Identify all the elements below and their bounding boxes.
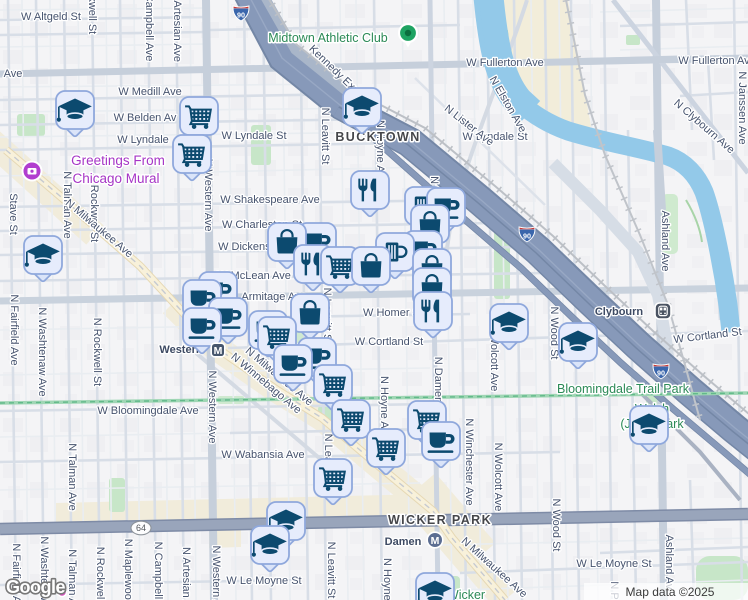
svg-text:W Fullerton Av: W Fullerton Av — [678, 55, 748, 67]
svg-text:N Artesian Ave: N Artesian Ave — [171, 0, 183, 62]
svg-text:Ashland Ave: Ashland Ave — [659, 211, 671, 272]
svg-text:W Bloomingdale Ave: W Bloomingdale Ave — [97, 405, 198, 417]
svg-text:Bloomingdale Trail Park: Bloomingdale Trail Park — [557, 382, 690, 396]
svg-text:Map data ©2025: Map data ©2025 — [626, 585, 715, 599]
svg-text:N Leavitt St: N Leavitt St — [319, 108, 331, 165]
svg-text:WICKER PARK: WICKER PARK — [388, 513, 492, 527]
svg-text:Chicago Mural: Chicago Mural — [72, 171, 159, 186]
svg-text:M: M — [214, 345, 223, 357]
svg-text:N Winchester Ave: N Winchester Ave — [463, 418, 475, 505]
svg-text:N Leavitt St: N Leavitt St — [325, 542, 337, 599]
svg-text:W Shakespeare Ave: W Shakespeare Ave — [220, 194, 319, 206]
svg-text:N Hoyne Ave: N Hoyne Ave — [381, 558, 393, 600]
svg-text:W Lyndale: W Lyndale — [117, 134, 169, 146]
svg-text:W Wabansia Ave: W Wabansia Ave — [221, 449, 304, 461]
svg-text:N Rockwell St: N Rockwell St — [86, 0, 98, 34]
svg-text:N Wood St: N Wood St — [550, 499, 562, 552]
svg-text:64: 64 — [136, 523, 146, 533]
svg-text:Damen: Damen — [385, 536, 422, 548]
svg-text:N Damen: N Damen — [432, 357, 444, 403]
svg-text:BUCKTOWN: BUCKTOWN — [335, 130, 420, 144]
svg-text:W Altgeld St: W Altgeld St — [21, 11, 81, 23]
svg-text:N Campbell Ave: N Campbell Ave — [152, 542, 164, 600]
svg-text:N Rockwell St: N Rockwell St — [94, 547, 106, 600]
svg-text:Greetings From: Greetings From — [71, 153, 165, 168]
svg-text:W Cortland St: W Cortland St — [355, 336, 423, 348]
svg-text:Ave: Ave — [4, 68, 23, 80]
svg-text:N Maplewood Ave: N Maplewood Ave — [122, 539, 134, 600]
svg-text:N Western Ave: N Western Ave — [210, 546, 222, 600]
svg-text:W Belden Av: W Belden Av — [114, 112, 177, 124]
svg-text:W Medill Ave: W Medill Ave — [118, 86, 181, 98]
svg-text:Stave St: Stave St — [7, 193, 19, 235]
svg-text:N Artesian Ave: N Artesian Ave — [180, 547, 192, 600]
svg-text:W Fullerton Ave: W Fullerton Ave — [466, 57, 543, 69]
svg-text:N Talman Ave: N Talman Ave — [66, 443, 78, 510]
svg-text:N Fairfield Ave: N Fairfield Ave — [8, 294, 20, 365]
svg-text:N Campbell Ave: N Campbell Ave — [143, 0, 155, 61]
svg-text:N Janssen Ave: N Janssen Ave — [736, 71, 748, 144]
svg-text:N Wolcott Ave: N Wolcott Ave — [492, 443, 504, 512]
svg-text:N Talman Ave: N Talman Ave — [66, 549, 78, 600]
svg-text:N Washtenaw Ave: N Washtenaw Ave — [36, 307, 48, 396]
svg-text:W Lyndale St: W Lyndale St — [221, 130, 286, 142]
svg-text:Midtown Athletic Club: Midtown Athletic Club — [268, 31, 388, 45]
svg-text:Clybourn: Clybourn — [595, 306, 644, 318]
svg-text:Ashland Av: Ashland Av — [663, 535, 675, 590]
svg-text:N Rockwell St: N Rockwell St — [91, 318, 103, 386]
svg-text:M: M — [431, 535, 440, 547]
svg-text:Google: Google — [6, 577, 65, 597]
svg-text:W Le Moyne St: W Le Moyne St — [226, 575, 301, 587]
svg-text:W Le Moyne St: W Le Moyne St — [576, 558, 651, 570]
svg-text:N Western Ave: N Western Ave — [206, 371, 218, 444]
